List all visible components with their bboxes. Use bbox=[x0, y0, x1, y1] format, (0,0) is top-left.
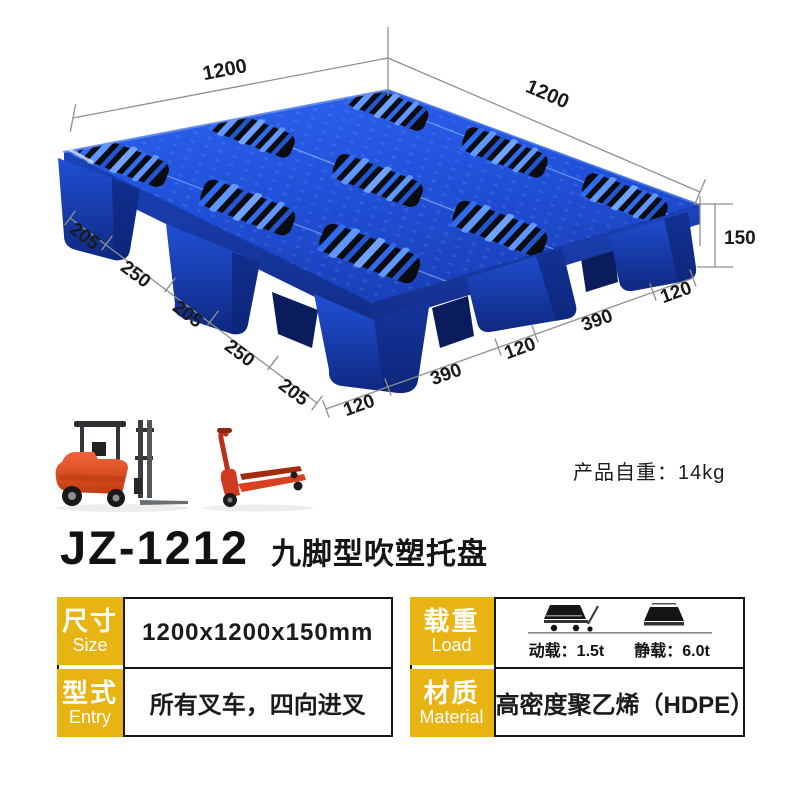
dim-label-top-right: 1200 bbox=[523, 76, 573, 114]
spec-label-size-cn: 尺寸 bbox=[62, 607, 118, 635]
spec-label-load-cn: 载重 bbox=[423, 607, 479, 635]
pallet-diagram: 1200 1200 150 205 250 205 250 205 120 39… bbox=[0, 0, 800, 520]
dim-label-left-4: 205 bbox=[274, 375, 312, 411]
spec-label-material: 材质 Material bbox=[410, 669, 494, 737]
spec-label-entry: 型式 Entry bbox=[57, 669, 123, 737]
spec-block-right: 载重 Load bbox=[410, 597, 746, 737]
static-load-icon bbox=[644, 603, 684, 626]
product-weight-note: 产品自重：14kg bbox=[573, 456, 725, 485]
spec-label-size-en: Size bbox=[72, 636, 107, 655]
load-icons bbox=[514, 602, 724, 638]
spec-table: 尺寸 Size 1200x1200x150mm 型式 Entry 所有叉车，四向… bbox=[57, 597, 745, 737]
pallet-jack-icon bbox=[203, 428, 313, 512]
spec-row-entry: 型式 Entry 所有叉车，四向进叉 bbox=[59, 667, 391, 735]
spec-label-load: 载重 Load bbox=[410, 597, 494, 665]
forklift-icon bbox=[56, 420, 188, 512]
dynamic-load-icon bbox=[544, 605, 598, 632]
spec-row-material: 材质 Material 高密度聚乙烯（HDPE） bbox=[412, 667, 744, 735]
dim-label-bottom-3: 390 bbox=[579, 306, 616, 337]
spec-label-entry-cn: 型式 bbox=[62, 679, 118, 707]
product-model: JZ-1212 bbox=[60, 520, 249, 575]
spec-value-size: 1200x1200x150mm bbox=[123, 599, 391, 667]
dynamic-load-value: 动载：1.5t bbox=[529, 637, 605, 661]
static-load-value: 静载：6.0t bbox=[634, 637, 710, 661]
dim-label-top-left: 1200 bbox=[201, 55, 249, 85]
dim-label-bottom-0: 120 bbox=[341, 391, 378, 422]
spec-value-entry: 所有叉车，四向进叉 bbox=[123, 667, 391, 735]
load-captions: 动载：1.5t 静载：6.0t bbox=[529, 637, 710, 661]
spec-label-load-en: Load bbox=[431, 636, 471, 655]
spec-label-entry-en: Entry bbox=[69, 708, 111, 727]
dim-label-height: 150 bbox=[724, 228, 756, 249]
dim-label-left-3: 250 bbox=[220, 336, 258, 372]
spec-value-material: 高密度聚乙烯（HDPE） bbox=[494, 667, 744, 735]
dim-label-left-1: 250 bbox=[116, 257, 154, 293]
spec-label-material-en: Material bbox=[419, 708, 483, 727]
spec-row-load: 载重 Load bbox=[412, 599, 744, 667]
spec-label-material-cn: 材质 bbox=[423, 679, 479, 707]
dim-label-bottom-2: 120 bbox=[502, 334, 539, 365]
product-sheet: 1200 1200 150 205 250 205 250 205 120 39… bbox=[0, 0, 800, 800]
spec-value-load: 动载：1.5t 静载：6.0t bbox=[494, 599, 744, 667]
dim-label-bottom-1: 390 bbox=[428, 360, 465, 391]
product-title: JZ-1212 九脚型吹塑托盘 bbox=[60, 520, 488, 575]
spec-block-left: 尺寸 Size 1200x1200x150mm 型式 Entry 所有叉车，四向… bbox=[57, 597, 393, 737]
spec-row-size: 尺寸 Size 1200x1200x150mm bbox=[59, 599, 391, 667]
product-series-name: 九脚型吹塑托盘 bbox=[271, 529, 488, 573]
spec-label-size: 尺寸 Size bbox=[57, 597, 123, 665]
